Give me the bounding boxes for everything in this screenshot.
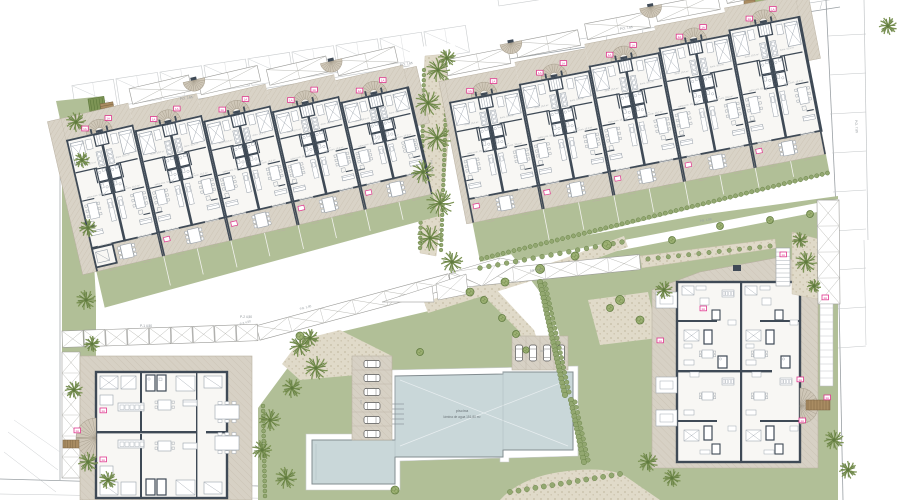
svg-text:1A: 1A: [781, 253, 785, 257]
svg-text:1A: 1A: [106, 116, 110, 120]
svg-text:1A: 1A: [152, 117, 156, 121]
svg-text:1A: 1A: [608, 53, 612, 57]
svg-text:1A: 1A: [83, 127, 87, 131]
svg-text:1A: 1A: [244, 97, 248, 101]
svg-text:1A: 1A: [823, 296, 827, 300]
svg-text:1A: 1A: [825, 396, 829, 400]
svg-text:P-2 4,50: P-2 4,50: [240, 315, 252, 319]
svg-text:1A: 1A: [800, 419, 804, 423]
svg-text:P-1 4,50: P-1 4,50: [140, 324, 152, 328]
svg-text:1A: 1A: [220, 108, 224, 112]
svg-text:1A: 1A: [562, 61, 566, 65]
svg-text:1A: 1A: [358, 89, 362, 93]
svg-text:4 P: 4 P: [540, 349, 545, 353]
svg-text:1A: 1A: [75, 429, 79, 433]
svg-text:1A: 1A: [538, 71, 542, 75]
svg-text:1A: 1A: [101, 409, 105, 413]
svg-text:1A: 1A: [747, 17, 751, 21]
svg-text:1A: 1A: [631, 43, 635, 47]
svg-text:1A: 1A: [492, 79, 496, 83]
svg-text:lámina de agua 151,80 m²: lámina de agua 151,80 m²: [443, 415, 480, 419]
svg-text:6 P: 6 P: [359, 400, 363, 405]
svg-text:1A: 1A: [312, 88, 316, 92]
svg-text:1A: 1A: [771, 7, 775, 11]
svg-text:1A: 1A: [101, 458, 105, 462]
svg-text:piscina: piscina: [456, 408, 469, 413]
svg-text:1A: 1A: [381, 78, 385, 82]
svg-text:1A: 1A: [678, 35, 682, 39]
svg-text:1A: 1A: [701, 25, 705, 29]
svg-text:1A: 1A: [289, 98, 293, 102]
svg-text:1A: 1A: [658, 339, 662, 343]
svg-text:1A: 1A: [701, 307, 705, 311]
svg-text:1A: 1A: [175, 107, 179, 111]
svg-text:1A: 1A: [798, 378, 802, 382]
svg-text:1A: 1A: [468, 89, 472, 93]
